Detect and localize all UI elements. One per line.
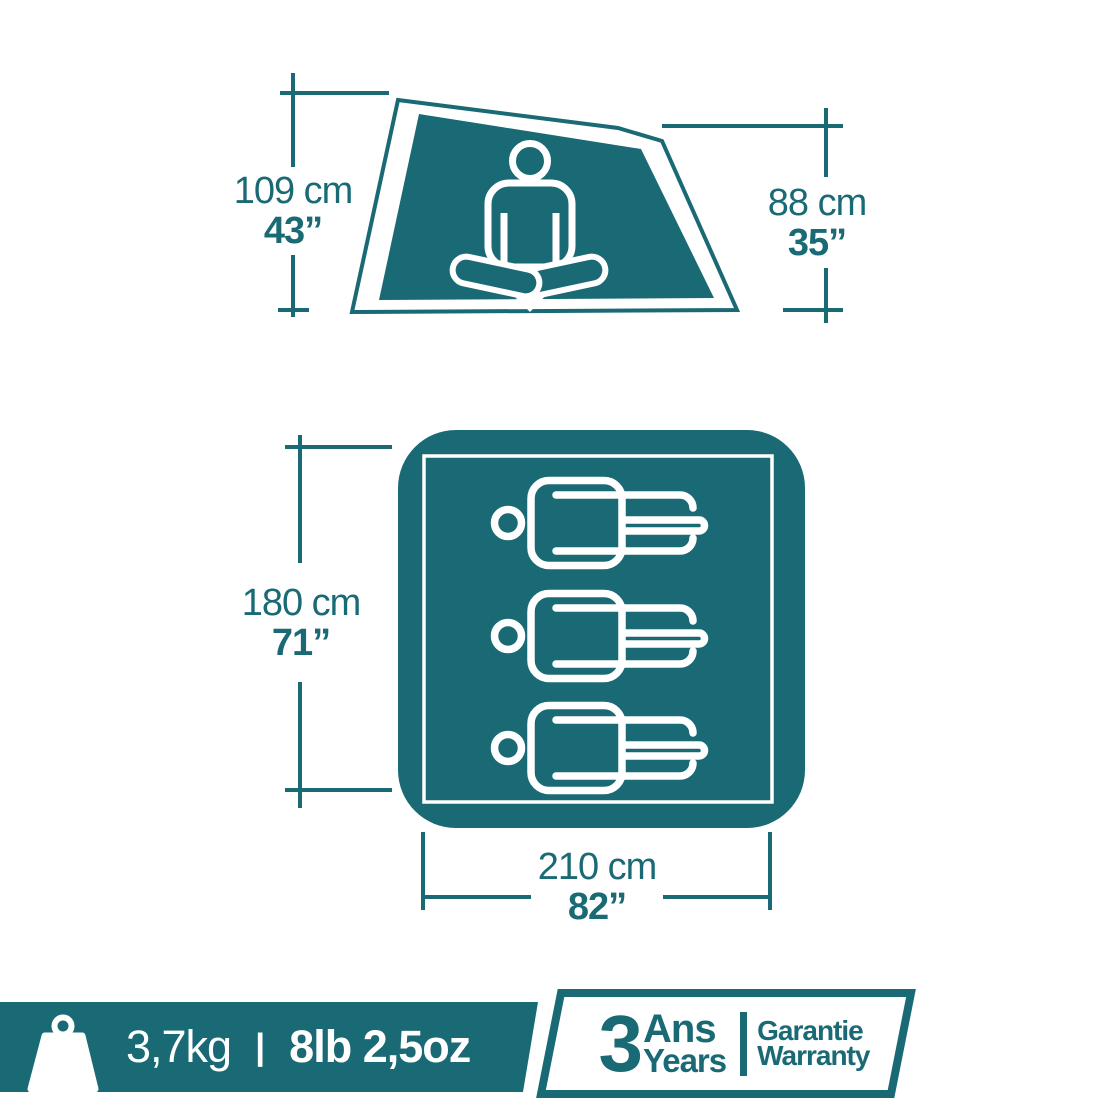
warranty-text-en: Warranty — [757, 1044, 869, 1069]
rear-height-imperial: 35” — [737, 223, 897, 263]
warranty-texts: Garantie Warranty — [757, 1019, 869, 1068]
product-dimensions-infographic: 109 cm 43” 88 cm 35” 180 cm 71” 210 cm 8… — [0, 0, 1100, 1100]
warranty-divider — [740, 1012, 747, 1076]
weight-metric: 3,7kg — [126, 1021, 231, 1073]
diagram-artwork — [0, 0, 1100, 1100]
side-height-metric: 109 cm — [213, 171, 373, 211]
warranty-unit-fr: Ans — [643, 1013, 726, 1046]
warranty-units: Ans Years — [643, 1013, 726, 1075]
side-height-imperial: 43” — [213, 211, 373, 251]
rear-height-metric: 88 cm — [737, 183, 897, 223]
weight-imperial: 8lb 2,5oz — [289, 1021, 470, 1073]
floor-view-tent — [398, 430, 805, 828]
weight-spec: 3,7kg | 8lb 2,5oz — [126, 1002, 470, 1092]
rear-height-label: 88 cm 35” — [737, 183, 897, 263]
weight-separator: | — [255, 1026, 265, 1068]
side-view-tent — [352, 100, 737, 312]
floor-length-imperial: 82” — [497, 887, 697, 927]
floor-width-label: 180 cm 71” — [221, 583, 381, 663]
floor-length-metric: 210 cm — [497, 847, 697, 887]
floor-length-label: 210 cm 82” — [497, 847, 697, 927]
side-height-label: 109 cm 43” — [213, 171, 373, 251]
floor-width-imperial: 71” — [221, 623, 381, 663]
warranty-years: 3 — [599, 1013, 641, 1075]
warranty-badge: 3 Ans Years Garantie Warranty — [570, 999, 898, 1089]
warranty-unit-en: Years — [643, 1046, 726, 1076]
floor-width-metric: 180 cm — [221, 583, 381, 623]
